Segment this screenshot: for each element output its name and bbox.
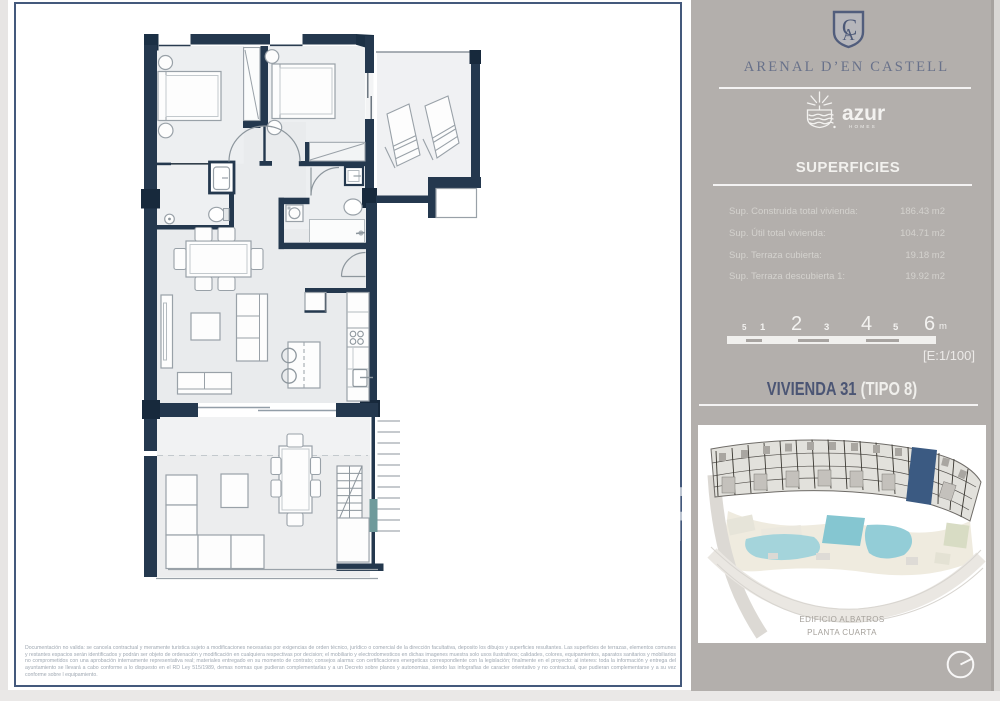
svg-text:azur: azur [842,102,885,125]
svg-text:HOMES: HOMES [849,124,877,129]
svg-text:EDIFICIO ALBATROS: EDIFICIO ALBATROS [799,615,884,624]
svg-text:PLANTA CUARTA: PLANTA CUARTA [807,628,877,637]
svg-text:A: A [842,25,855,44]
